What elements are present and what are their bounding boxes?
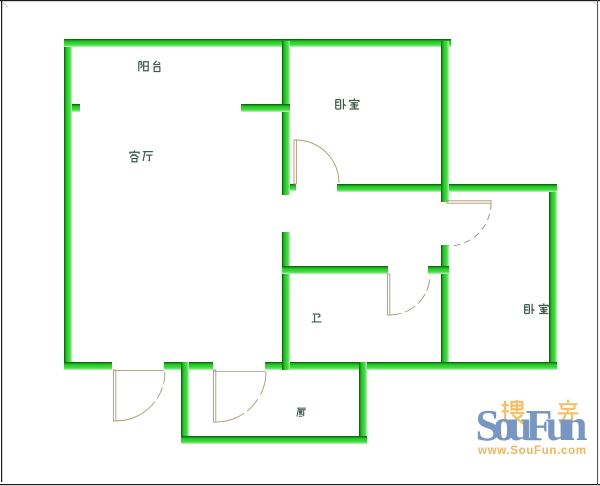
- svg-text:SouFun: SouFun: [476, 401, 588, 450]
- svg-text:www.SouFun.com: www.SouFun.com: [477, 445, 586, 457]
